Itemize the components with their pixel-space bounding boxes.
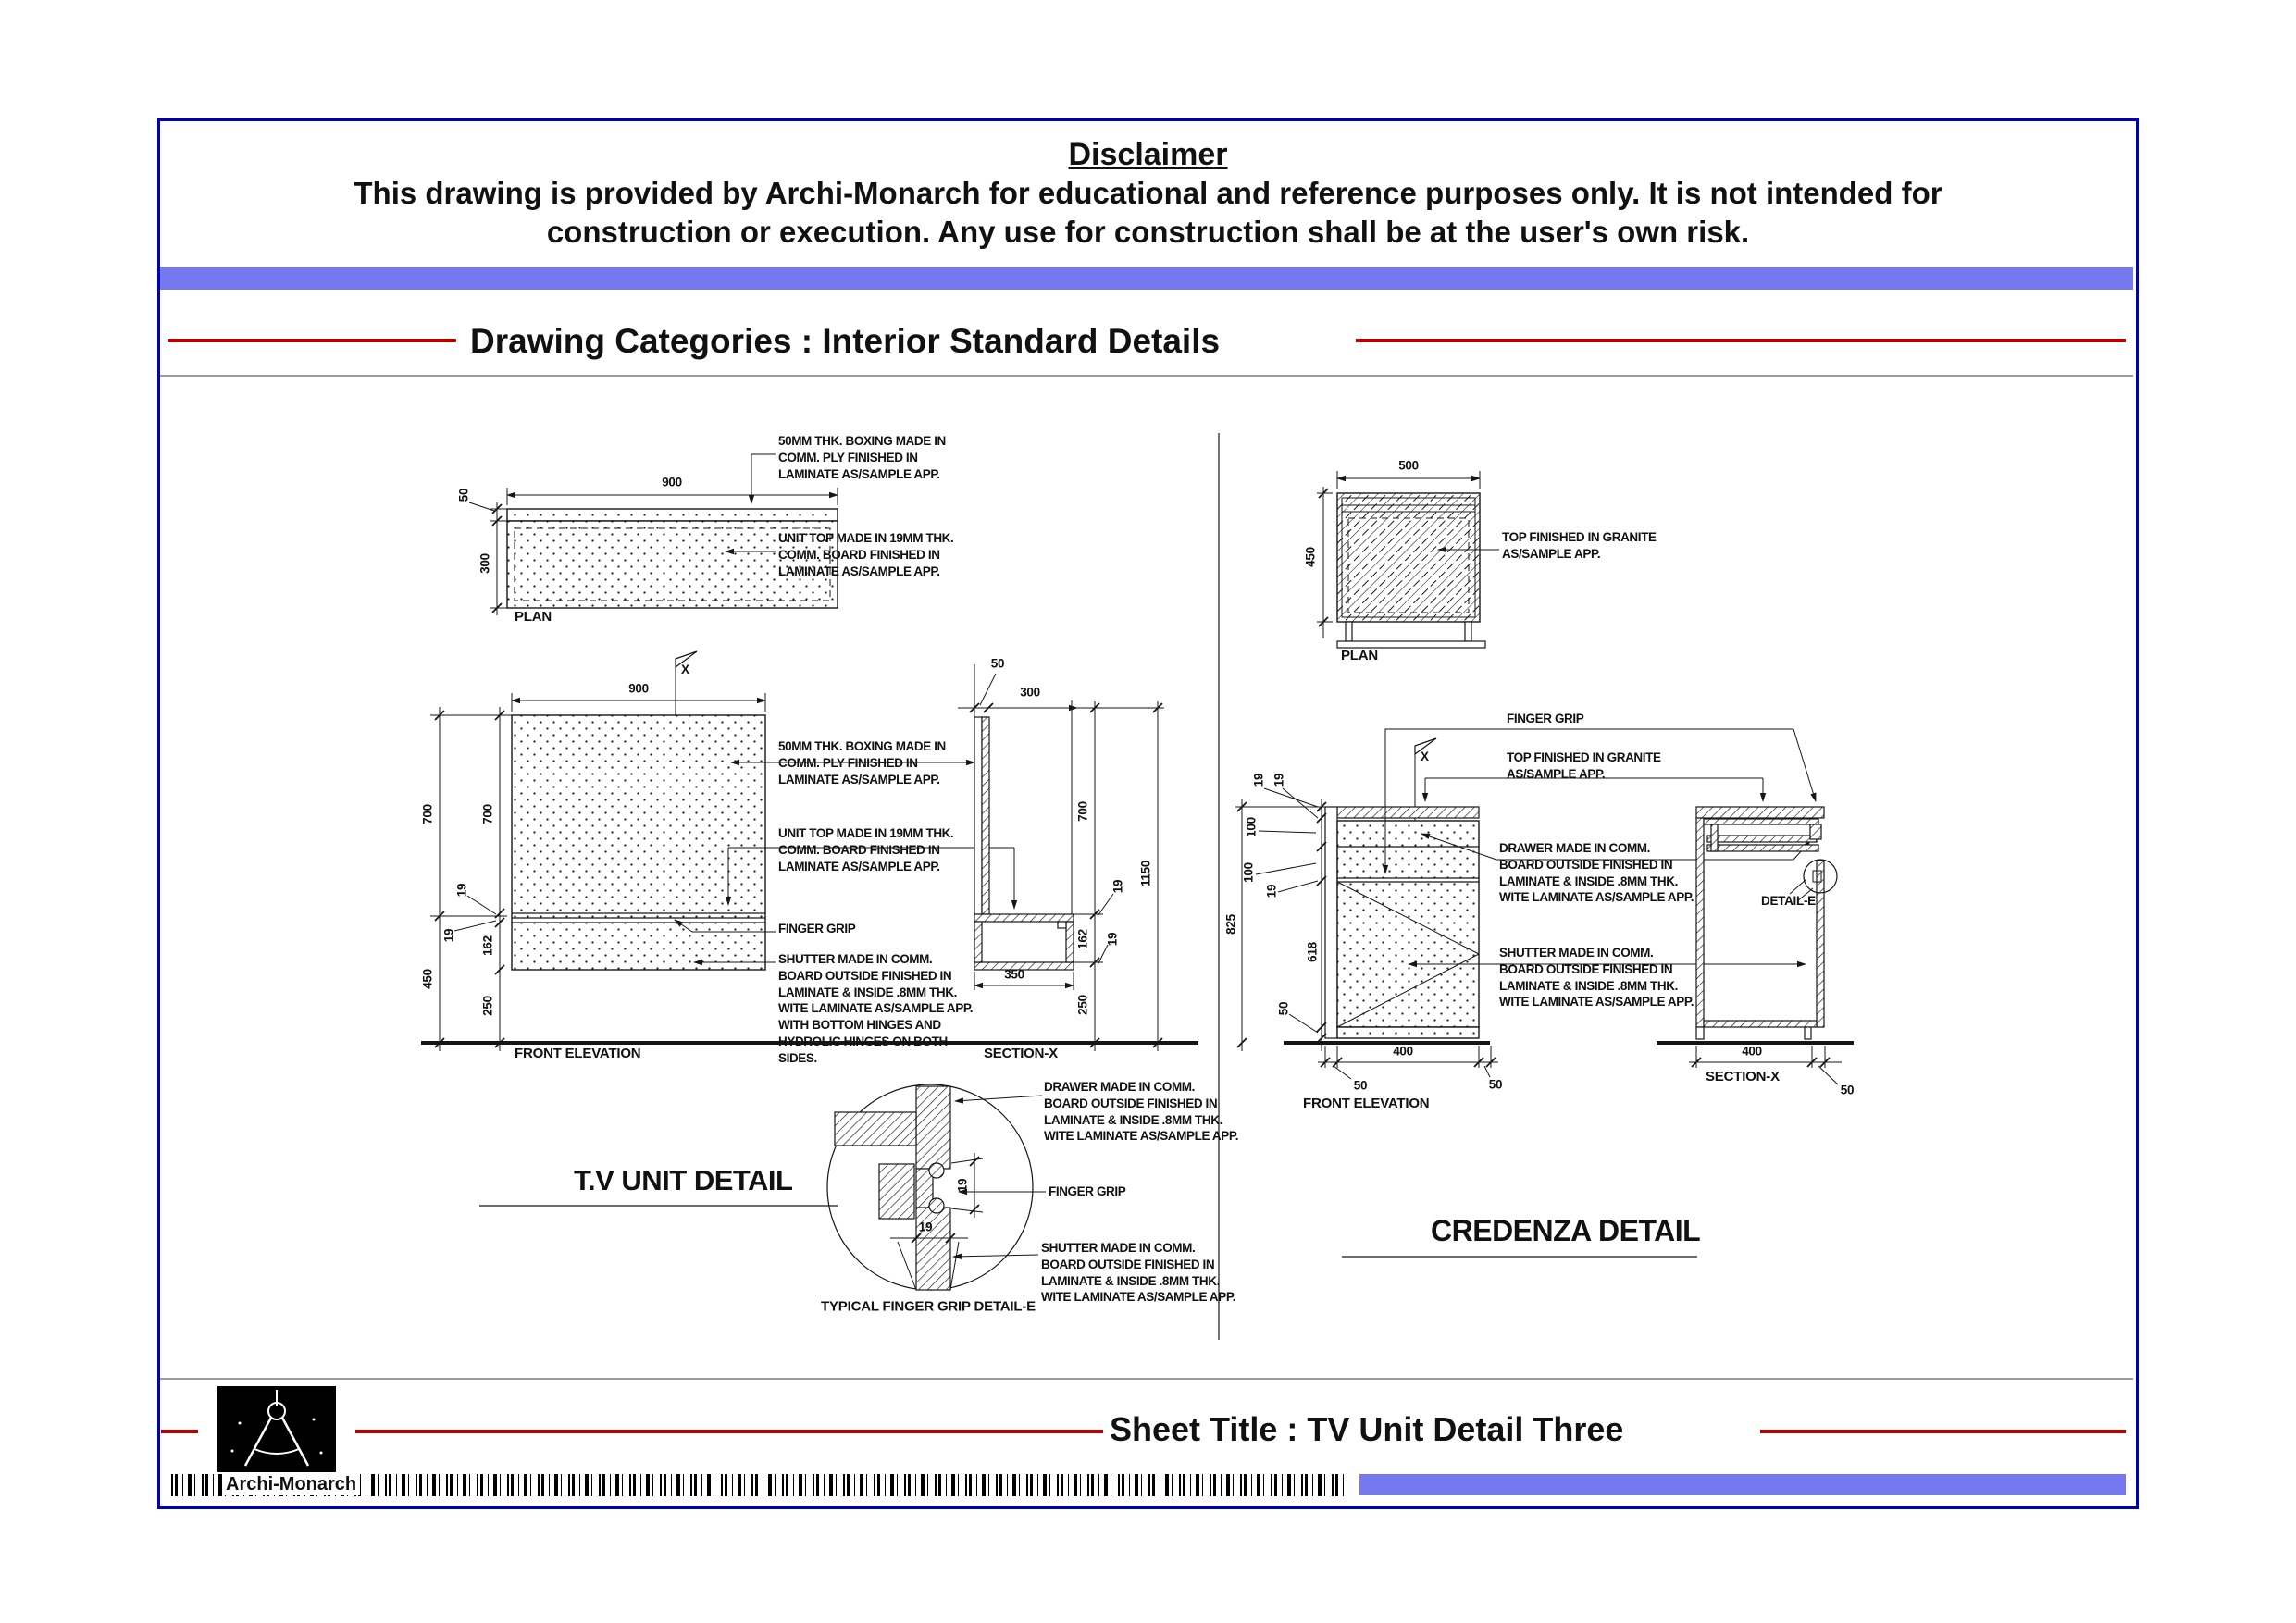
credenza-elev-dim-100a: 100: [1245, 817, 1259, 837]
tv-elev-dim-19a: 19: [455, 884, 469, 897]
credenza-plan-caption: PLAN: [1341, 648, 1378, 663]
tv-sec-caption: SECTION-X: [984, 1046, 1058, 1061]
tv-elev-dim-700-outer: 700: [421, 804, 435, 824]
credenza-elev-dim-100b: 100: [1242, 862, 1256, 883]
credenza-plan-drawing: [1317, 471, 1499, 648]
credenza-elev-dim-50-plinth: 50: [1277, 1002, 1291, 1015]
credenza-detail-title: CREDENZA DETAIL: [1431, 1214, 1700, 1248]
sheet-title-red-line-right: [1760, 1430, 2126, 1433]
credenza-plan-note-granite: TOP FINISHED IN GRANITE AS/SAMPLE APP.: [1502, 529, 1698, 563]
tv-plan-note-unit-top: UNIT TOP MADE IN 19MM THK. COMM. BOARD F…: [778, 530, 974, 579]
tv-elev-label-finger-grip: FINGER GRIP: [778, 921, 974, 937]
tv-plan-dim-thickness: 50: [457, 489, 471, 502]
tv-elev-dim-162: 162: [481, 935, 495, 956]
footer-blue-band: [1359, 1474, 2126, 1495]
credenza-elev-dim-825: 825: [1224, 914, 1238, 935]
tv-plan-dim-depth: 300: [478, 553, 492, 574]
credenza-elev-dim-400: 400: [1393, 1045, 1413, 1059]
credenza-sec-caption: SECTION-X: [1706, 1069, 1780, 1084]
credenza-sec-dim-50: 50: [1841, 1084, 1854, 1097]
tv-sec-dim-700: 700: [1076, 801, 1090, 822]
tv-grip-label-finger-grip: FINGER GRIP: [1049, 1183, 1245, 1200]
credenza-elev-dim-19b: 19: [1272, 774, 1286, 787]
tv-elev-dim-700-inner: 700: [481, 804, 495, 824]
credenza-elev-dim-50-left: 50: [1354, 1079, 1367, 1093]
tv-elev-note-shutter: SHUTTER MADE IN COMM. BOARD OUTSIDE FINI…: [778, 951, 974, 1067]
tv-section-drawing: [949, 664, 1198, 1051]
credenza-elev-caption: FRONT ELEVATION: [1303, 1096, 1429, 1111]
credenza-elev-dim-618: 618: [1306, 942, 1320, 962]
footer-divider-line: [160, 1378, 2133, 1380]
credenza-note-granite: TOP FINISHED IN GRANITE AS/SAMPLE APP.: [1507, 750, 1703, 783]
sheet-title-red-line-far-left: [161, 1430, 198, 1433]
credenza-elev-section-flag: X: [1421, 750, 1429, 763]
tv-sec-dim-19a: 19: [1111, 880, 1125, 893]
tv-sec-dim-1150: 1150: [1139, 861, 1153, 886]
tv-plan-note-boxing: 50MM THK. BOXING MADE IN COMM. PLY FINIS…: [778, 433, 974, 482]
credenza-sec-detail-e-label: DETAIL-E: [1761, 894, 1816, 908]
tv-elev-section-flag: X: [681, 663, 689, 676]
sheet-title-red-line-left: [355, 1430, 1103, 1433]
tv-plan-caption: PLAN: [515, 609, 552, 625]
compass-icon: [217, 1386, 336, 1472]
credenza-elev-dim-19c: 19: [1265, 885, 1279, 898]
tv-elev-dim-19b: 19: [442, 929, 456, 942]
tv-elev-caption: FRONT ELEVATION: [515, 1046, 640, 1061]
tv-grip-note-shutter: SHUTTER MADE IN COMM. BOARD OUTSIDE FINI…: [1041, 1240, 1237, 1306]
tv-elev-dim-450: 450: [421, 969, 435, 989]
tv-sec-dim-162: 162: [1076, 929, 1090, 949]
credenza-plan-dim-width: 500: [1398, 459, 1419, 473]
tv-elev-note-boxing: 50MM THK. BOXING MADE IN COMM. PLY FINIS…: [778, 738, 974, 787]
tv-elev-dim-250: 250: [481, 996, 495, 1016]
tv-plan-dim-width: 900: [662, 476, 682, 489]
tv-elev-note-unit-top: UNIT TOP MADE IN 19MM THK. COMM. BOARD F…: [778, 825, 974, 874]
credenza-note-shutter: SHUTTER MADE IN COMM. BOARD OUTSIDE FINI…: [1499, 945, 1695, 1010]
archi-monarch-logo: [217, 1386, 336, 1472]
tv-sec-dim-50: 50: [991, 657, 1004, 671]
tv-grip-caption: TYPICAL FINGER GRIP DETAIL-E: [821, 1299, 1036, 1315]
tv-unit-detail-title: T.V UNIT DETAIL: [574, 1164, 792, 1197]
tv-grip-dim-19b: 19: [919, 1220, 932, 1234]
credenza-elev-dim-50-right: 50: [1489, 1078, 1502, 1092]
brand-name: Archi-Monarch: [222, 1474, 360, 1495]
credenza-plan-dim-depth: 450: [1304, 547, 1318, 567]
tv-sec-dim-19b: 19: [1106, 933, 1120, 946]
credenza-sec-dim-400: 400: [1742, 1045, 1762, 1059]
tv-grip-note-drawer: DRAWER MADE IN COMM. BOARD OUTSIDE FINIS…: [1044, 1079, 1240, 1145]
tv-grip-dim-19a: 19: [956, 1179, 970, 1192]
credenza-elev-dim-19a: 19: [1252, 774, 1266, 787]
tv-sec-dim-250: 250: [1076, 995, 1090, 1015]
sheet-title: Sheet Title : TV Unit Detail Three: [1110, 1410, 1623, 1449]
tv-sec-dim-350: 350: [1004, 968, 1024, 982]
tv-sec-dim-300: 300: [1020, 686, 1040, 700]
credenza-label-finger-grip: FINGER GRIP: [1507, 711, 1703, 727]
credenza-note-drawer: DRAWER MADE IN COMM. BOARD OUTSIDE FINIS…: [1499, 840, 1695, 906]
tv-elev-dim-width: 900: [628, 682, 649, 696]
